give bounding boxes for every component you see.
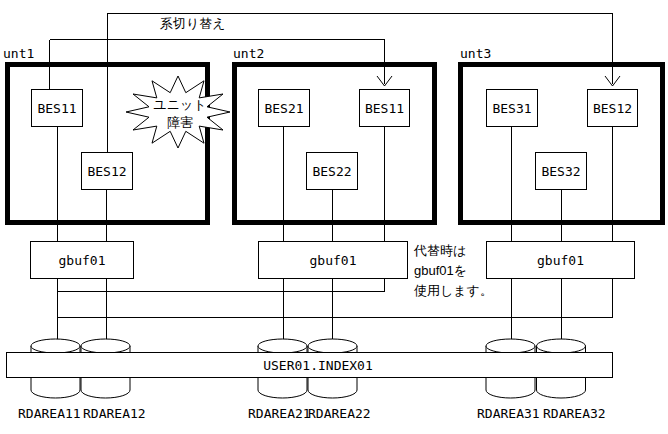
bes21-label: BES21 bbox=[264, 101, 303, 116]
rdarea31-label: RDAREA31 bbox=[477, 406, 540, 421]
substitute-note-line2: gbuf01を bbox=[414, 263, 467, 278]
failover-diagram: unt1 unt2 unt3 系切り替え BES11 BES12 ユニット 障害… bbox=[0, 0, 668, 434]
index-table-label: USER01.INDEX01 bbox=[263, 358, 373, 373]
bes11-unit1-label: BES11 bbox=[37, 101, 76, 116]
bes32-label: BES32 bbox=[541, 164, 580, 179]
rdarea11-label: RDAREA11 bbox=[18, 406, 81, 421]
bes12-unit1-label: BES12 bbox=[87, 164, 126, 179]
bes22-label: BES22 bbox=[312, 164, 351, 179]
unit1-label: unt1 bbox=[3, 46, 34, 61]
unit2-frame bbox=[235, 65, 435, 223]
rdarea22-label: RDAREA22 bbox=[308, 406, 371, 421]
gbuf01-unit3-label: gbuf01 bbox=[537, 253, 584, 268]
substitute-note-line3: 使用します。 bbox=[414, 283, 493, 298]
substitute-note-line1: 代替時は bbox=[413, 243, 466, 258]
bes31-label: BES31 bbox=[492, 101, 531, 116]
switchover-line-bes11 bbox=[50, 40, 385, 85]
rdarea32-label: RDAREA32 bbox=[543, 406, 606, 421]
bes12-unit3-label: BES12 bbox=[593, 101, 632, 116]
unit2-label: unt2 bbox=[233, 46, 264, 61]
unit3-label: unt3 bbox=[460, 46, 491, 61]
rdarea12-label: RDAREA12 bbox=[83, 406, 146, 421]
switchover-label: 系切り替え bbox=[160, 16, 226, 31]
gbuf01-unit1-label: gbuf01 bbox=[59, 253, 106, 268]
rdarea21-label: RDAREA21 bbox=[248, 406, 311, 421]
unit-failure-text-2: 障害 bbox=[167, 115, 193, 130]
unit-failure-text-1: ユニット bbox=[153, 97, 206, 112]
gbuf01-unit2-label: gbuf01 bbox=[310, 253, 357, 268]
unit-failure-burst bbox=[126, 76, 230, 148]
bes11-unit2-label: BES11 bbox=[365, 101, 404, 116]
